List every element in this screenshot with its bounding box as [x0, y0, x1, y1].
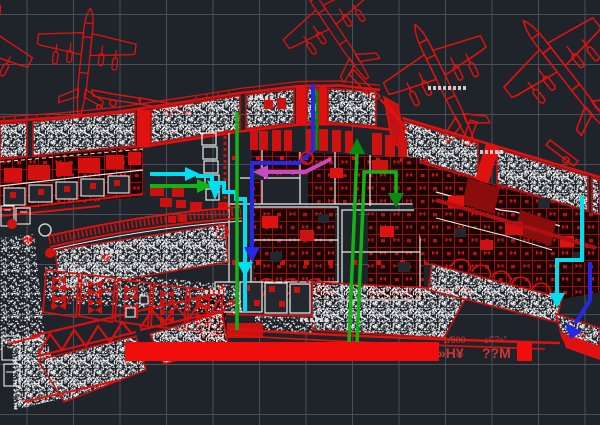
svg-text:»H¥: »H¥: [438, 345, 464, 361]
svg-text:??M: ??M: [482, 345, 511, 361]
svg-text:1/500: 1/500: [443, 335, 466, 345]
svg-text:¿C?»°: ¿C?»°: [484, 335, 507, 344]
